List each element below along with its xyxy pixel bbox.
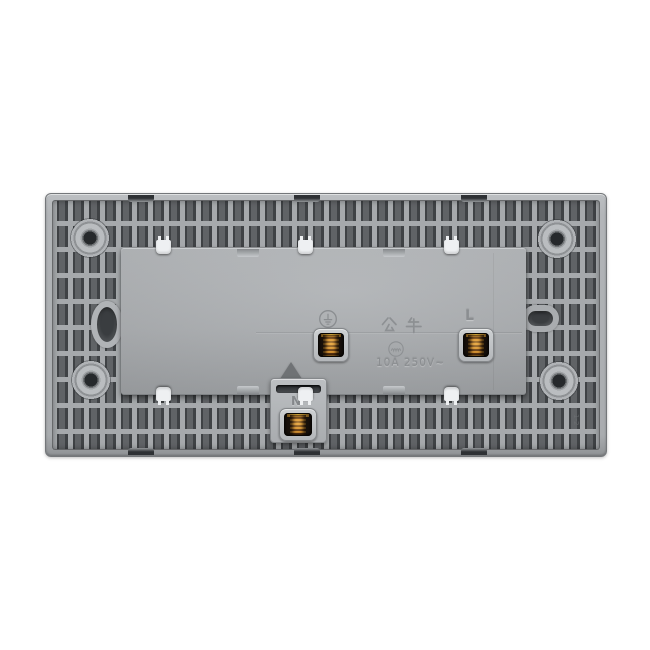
retaining-clip	[444, 240, 459, 254]
module-seam	[493, 253, 494, 390]
terminal-screw	[290, 415, 306, 435]
terminal-screw	[468, 335, 484, 356]
terminal-hole	[463, 333, 489, 357]
frame-notch	[294, 448, 320, 455]
earth-symbol-icon	[318, 309, 338, 329]
screw-boss	[71, 360, 111, 400]
retaining-clip	[298, 240, 313, 254]
screw-boss	[537, 219, 577, 259]
module-notch	[383, 249, 405, 257]
product-photo: L N	[0, 0, 650, 650]
terminal-live-label: L	[465, 308, 474, 324]
terminal-neutral	[279, 408, 317, 441]
terminal-hole	[318, 333, 344, 357]
retaining-clip	[444, 387, 459, 401]
mounting-oval-hole	[91, 301, 123, 348]
module-notch	[237, 386, 259, 394]
certification-mark-icon	[387, 340, 405, 358]
frame-notch	[461, 195, 487, 202]
module-notch	[383, 386, 405, 394]
terminal-screw	[323, 335, 339, 356]
socket-back-plate: L N	[45, 193, 607, 457]
frame-notch	[128, 195, 154, 202]
terminal-earth	[313, 328, 349, 362]
screw-boss	[539, 361, 579, 401]
frame-notch	[128, 448, 154, 455]
terminal-module: L N	[121, 248, 526, 395]
mold-mark-label: 1-2	[572, 414, 580, 425]
rating-label: 10A 250V~	[376, 357, 486, 369]
frame-notch	[461, 448, 487, 455]
module-notch	[237, 249, 259, 257]
terminal-hole	[284, 413, 312, 436]
retaining-clip	[156, 387, 171, 401]
brand-logo	[379, 315, 425, 335]
arrow-up-icon	[280, 362, 302, 379]
screw-boss	[70, 218, 110, 258]
mounting-oval-hole	[522, 305, 559, 332]
frame-notch	[294, 195, 320, 202]
retaining-clip	[156, 240, 171, 254]
retaining-clip	[298, 387, 313, 401]
